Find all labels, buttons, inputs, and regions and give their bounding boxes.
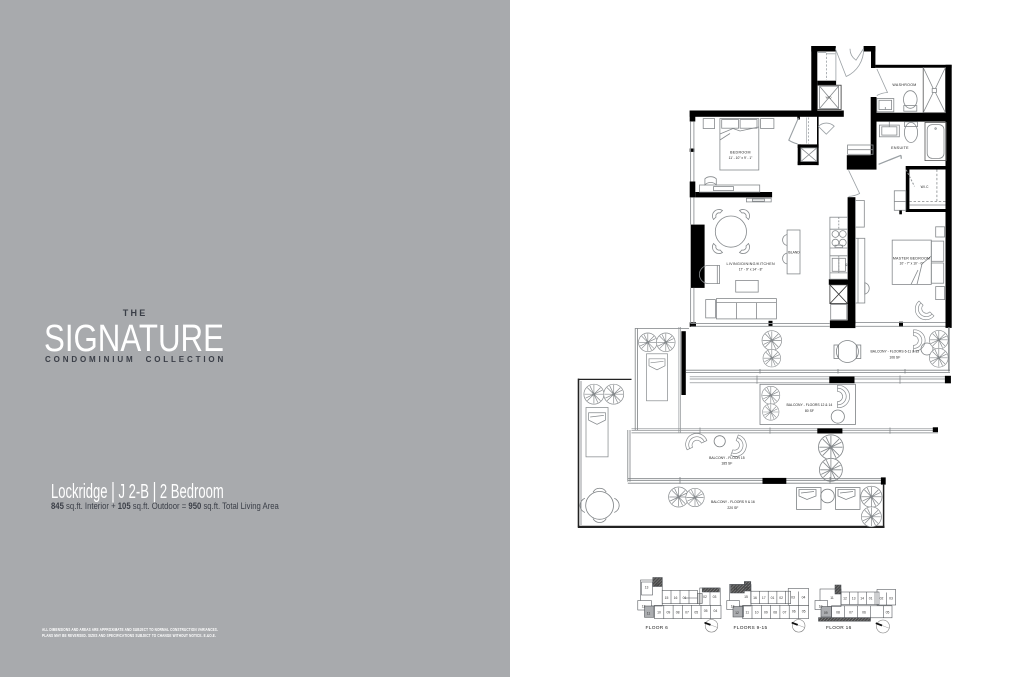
svg-text:01: 01: [869, 597, 873, 601]
svg-text:08: 08: [773, 611, 777, 615]
svg-text:05: 05: [802, 610, 806, 614]
svg-text:13: 13: [645, 586, 649, 590]
svg-text:15: 15: [744, 595, 748, 599]
svg-text:BEDROOM: BEDROOM: [730, 151, 751, 155]
svg-text:11' - 10" x 9' - 1": 11' - 10" x 9' - 1": [729, 156, 754, 160]
svg-text:02: 02: [703, 595, 707, 599]
svg-text:14: 14: [734, 587, 738, 591]
svg-text:14: 14: [655, 583, 659, 587]
svg-text:07: 07: [685, 611, 689, 615]
svg-text:03: 03: [791, 596, 795, 600]
svg-text:03: 03: [713, 595, 717, 599]
svg-text:15: 15: [745, 587, 749, 591]
svg-text:11: 11: [647, 612, 651, 616]
svg-text:FLOOR 16: FLOOR 16: [826, 625, 852, 631]
svg-text:12: 12: [642, 605, 646, 609]
svg-text:15: 15: [665, 596, 669, 600]
svg-text:12: 12: [843, 597, 847, 601]
svg-text:220 SF: 220 SF: [727, 506, 738, 510]
svg-text:10' - 7" x 10' - 0": 10' - 7" x 10' - 0": [900, 262, 925, 266]
svg-text:106 SF: 106 SF: [889, 355, 900, 359]
svg-text:FLOOR 6: FLOOR 6: [646, 625, 669, 631]
svg-text:07: 07: [849, 611, 853, 615]
svg-text:09: 09: [824, 611, 828, 615]
svg-text:05: 05: [886, 611, 890, 615]
svg-text:BALCONY - FLOOR 15: BALCONY - FLOOR 15: [709, 456, 745, 460]
svg-text:05: 05: [694, 611, 698, 615]
svg-text:05: 05: [704, 609, 708, 613]
svg-text:10: 10: [819, 605, 823, 609]
svg-text:08: 08: [836, 611, 840, 615]
svg-text:03: 03: [889, 597, 893, 601]
svg-text:10: 10: [657, 611, 661, 615]
svg-text:16: 16: [674, 596, 678, 600]
svg-text:BALCONY - FLOORS 12 & 14: BALCONY - FLOORS 12 & 14: [787, 403, 833, 407]
svg-text:04: 04: [802, 596, 806, 600]
svg-text:07: 07: [783, 611, 787, 615]
svg-text:BALCONY - FLOORS 6-11 & 13: BALCONY - FLOORS 6-11 & 13: [871, 350, 920, 354]
svg-text:08: 08: [676, 611, 680, 615]
svg-text:16: 16: [753, 596, 757, 600]
svg-text:LIVING/DINING/KITCHEN: LIVING/DINING/KITCHEN: [726, 262, 775, 266]
svg-text:MASTER BEDROOM: MASTER BEDROOM: [893, 256, 930, 260]
svg-text:04: 04: [714, 609, 718, 613]
svg-text:14: 14: [860, 597, 864, 601]
svg-text:WASHROOM: WASHROOM: [892, 83, 916, 87]
svg-text:02: 02: [779, 596, 783, 600]
svg-text:06: 06: [862, 611, 866, 615]
svg-text:13: 13: [852, 597, 856, 601]
svg-text:06: 06: [792, 610, 796, 614]
svg-text:09: 09: [667, 611, 671, 615]
svg-text:09: 09: [764, 611, 768, 615]
svg-text:ENSUITE: ENSUITE: [891, 146, 909, 150]
svg-text:BALCONY - FLOORS 9 & 16: BALCONY - FLOORS 9 & 16: [711, 500, 755, 504]
svg-text:02: 02: [880, 597, 884, 601]
svg-text:01: 01: [683, 596, 687, 600]
svg-text:13: 13: [731, 605, 735, 609]
svg-text:17: 17: [762, 596, 766, 600]
svg-text:12: 12: [735, 611, 739, 615]
svg-text:17' - 9" x 14' - 8": 17' - 9" x 14' - 8": [739, 267, 764, 271]
svg-text:01: 01: [771, 596, 775, 600]
svg-text:11: 11: [830, 596, 834, 600]
svg-text:80 SF: 80 SF: [805, 409, 814, 413]
svg-text:ISLAND: ISLAND: [788, 250, 801, 254]
svg-text:W.I.C: W.I.C: [921, 185, 929, 189]
svg-text:FLOORS 9-15: FLOORS 9-15: [734, 625, 768, 631]
svg-text:11: 11: [746, 611, 750, 615]
svg-text:185 SF: 185 SF: [721, 462, 732, 466]
svg-text:W/D: W/D: [826, 96, 833, 100]
svg-text:10: 10: [755, 611, 759, 615]
